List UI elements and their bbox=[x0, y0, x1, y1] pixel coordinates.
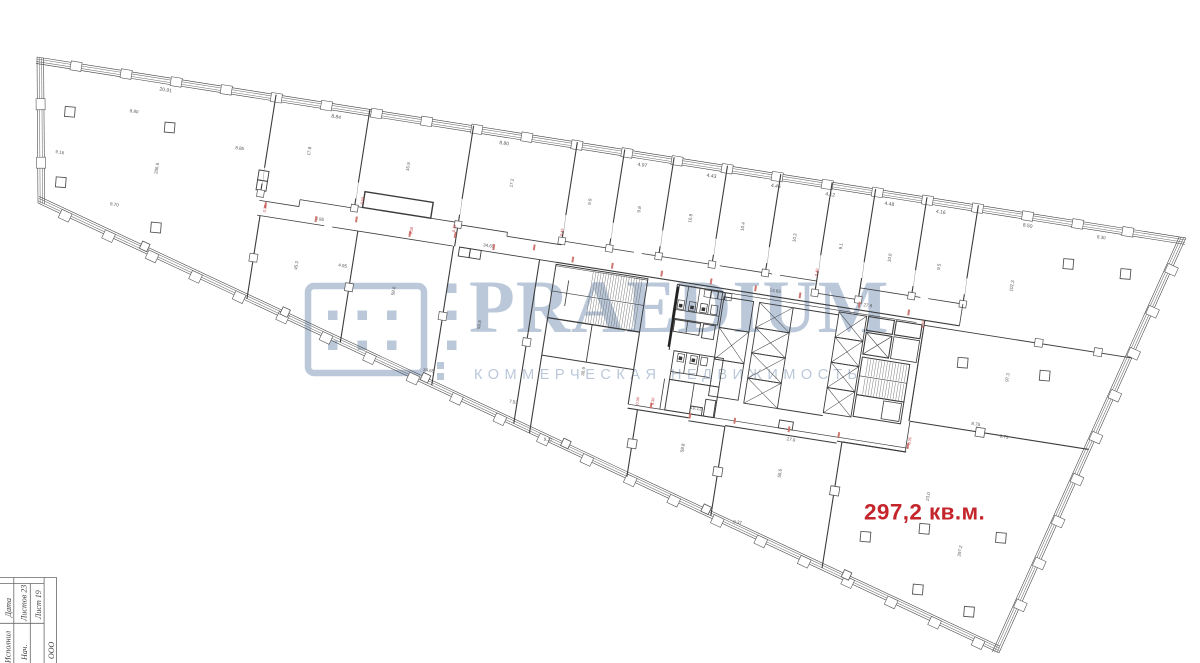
svg-text:ООО: ООО bbox=[47, 641, 56, 659]
svg-text:КОММЕРЧЕСКАЯ НЕДВИЖИМОСТЬ: КОММЕРЧЕСКАЯ НЕДВИЖИМОСТЬ bbox=[474, 367, 863, 383]
svg-text:Дата: Дата bbox=[4, 598, 13, 618]
svg-text:297,2 кв.м.: 297,2 кв.м. bbox=[864, 500, 985, 525]
svg-text:Исполнил: Исполнил bbox=[4, 630, 13, 663]
svg-text:Нач.: Нач. bbox=[20, 645, 29, 662]
svg-text:Листов 23: Листов 23 bbox=[20, 585, 29, 622]
svg-text:Лист 19: Лист 19 bbox=[34, 590, 43, 620]
